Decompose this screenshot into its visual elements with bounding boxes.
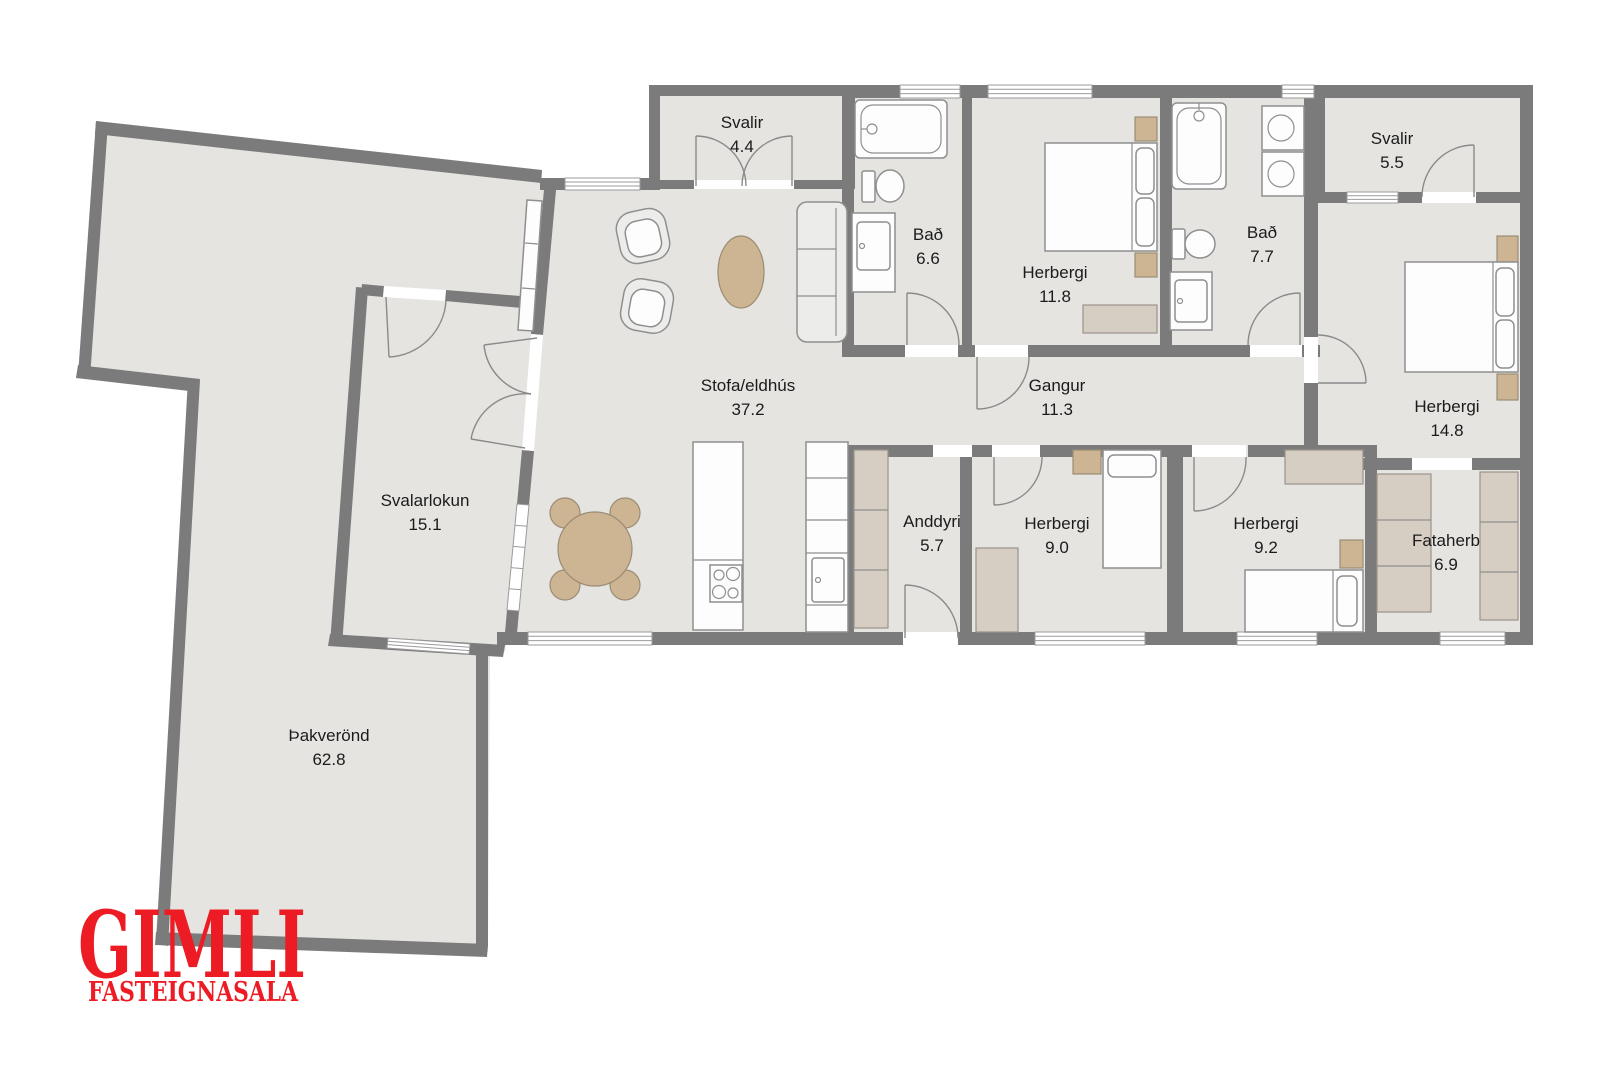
floorplan-page: Svalir 4.4 Bað 6.6 Herbergi 11.8 Bað 7.7…: [0, 0, 1600, 1066]
room-label-svalarlokun: Svalarlokun: [381, 491, 470, 510]
nightstand: [1340, 540, 1363, 568]
room-label-herb148: Herbergi: [1414, 397, 1479, 416]
room-area-herb92: 9.2: [1254, 538, 1278, 557]
room-label-herb118: Herbergi: [1022, 263, 1087, 282]
wardrobe: [976, 548, 1018, 632]
coffee-table: [718, 236, 764, 308]
pillow: [1496, 268, 1514, 316]
window: [1035, 632, 1145, 645]
room-label-svalir55: Svalir: [1371, 129, 1414, 148]
window: [565, 178, 640, 190]
room-label-stofa: Stofa/eldhús: [701, 376, 796, 395]
toilet-icon: [1172, 229, 1215, 259]
armchair: [618, 276, 676, 336]
dresser: [1285, 450, 1363, 484]
kitchen-counter: [806, 442, 848, 632]
nightstand: [1497, 374, 1518, 400]
pillow: [1136, 198, 1154, 246]
window: [528, 632, 652, 645]
window: [1237, 632, 1317, 645]
room-area-bath77: 7.7: [1250, 247, 1274, 266]
window: [900, 85, 960, 98]
window: [1440, 632, 1505, 645]
sofa: [797, 202, 847, 342]
room-area-gangur: 11.3: [1041, 400, 1073, 419]
nightstand: [1135, 117, 1157, 141]
room-area-svalarlokun: 15.1: [408, 515, 441, 534]
pillow: [1108, 455, 1156, 477]
dresser: [1083, 305, 1157, 333]
room-label-fataherb: Fataherb: [1412, 531, 1480, 550]
wardrobe: [854, 450, 888, 628]
toilet-icon: [862, 170, 904, 202]
agency-logo: GIMLI FASTEIGNASALA: [78, 890, 306, 1008]
room-label-herb92: Herbergi: [1233, 514, 1298, 533]
room-area-anddyri: 5.7: [920, 536, 944, 555]
single-bed: [1245, 570, 1363, 632]
pillow: [1496, 320, 1514, 368]
room-area-bath66: 6.6: [916, 249, 940, 268]
floorplan-drawing: Svalir 4.4 Bað 6.6 Herbergi 11.8 Bað 7.7…: [0, 0, 1600, 1066]
room-area-herb90: 9.0: [1045, 538, 1069, 557]
dining-set: [550, 498, 640, 600]
window: [1347, 192, 1398, 203]
dining-table: [558, 512, 632, 586]
room-label-herb90: Herbergi: [1024, 514, 1089, 533]
room-area-thakverond: 62.8: [312, 750, 345, 769]
pillow: [1337, 576, 1357, 626]
room-label-gangur: Gangur: [1029, 376, 1086, 395]
room-area-fataherb: 6.9: [1434, 555, 1458, 574]
room-area-stofa: 37.2: [731, 400, 764, 419]
logo-subtitle: FASTEIGNASALA: [88, 977, 299, 1008]
nightstand: [1135, 253, 1157, 277]
nightstand: [1497, 236, 1518, 262]
washer-icon: [1262, 106, 1304, 150]
room-label-bath66: Bað: [913, 225, 943, 244]
kitchen-sink: [812, 558, 844, 602]
room-label-svalir44: Svalir: [721, 113, 764, 132]
room-area-herb148: 14.8: [1430, 421, 1463, 440]
bathtub: [855, 100, 947, 158]
room-area-herb118: 11.8: [1039, 287, 1071, 306]
window: [988, 85, 1092, 98]
bathtub: [1172, 103, 1226, 189]
room-area-svalir55: 5.5: [1380, 153, 1404, 172]
nightstand: [1073, 450, 1101, 474]
bathroom-vanity: [852, 213, 895, 292]
wardrobe: [1480, 472, 1518, 620]
room-label-anddyri: Anddyri: [903, 512, 961, 531]
room-area-svalir44: 4.4: [730, 137, 754, 156]
window: [1282, 85, 1314, 98]
bathroom-vanity: [1170, 272, 1212, 330]
room-label-thakverond: Þakverönd: [288, 726, 369, 745]
kitchen-island: [693, 442, 743, 630]
pillow: [1136, 148, 1154, 194]
dryer-icon: [1262, 152, 1304, 196]
room-label-bath77: Bað: [1247, 223, 1277, 242]
